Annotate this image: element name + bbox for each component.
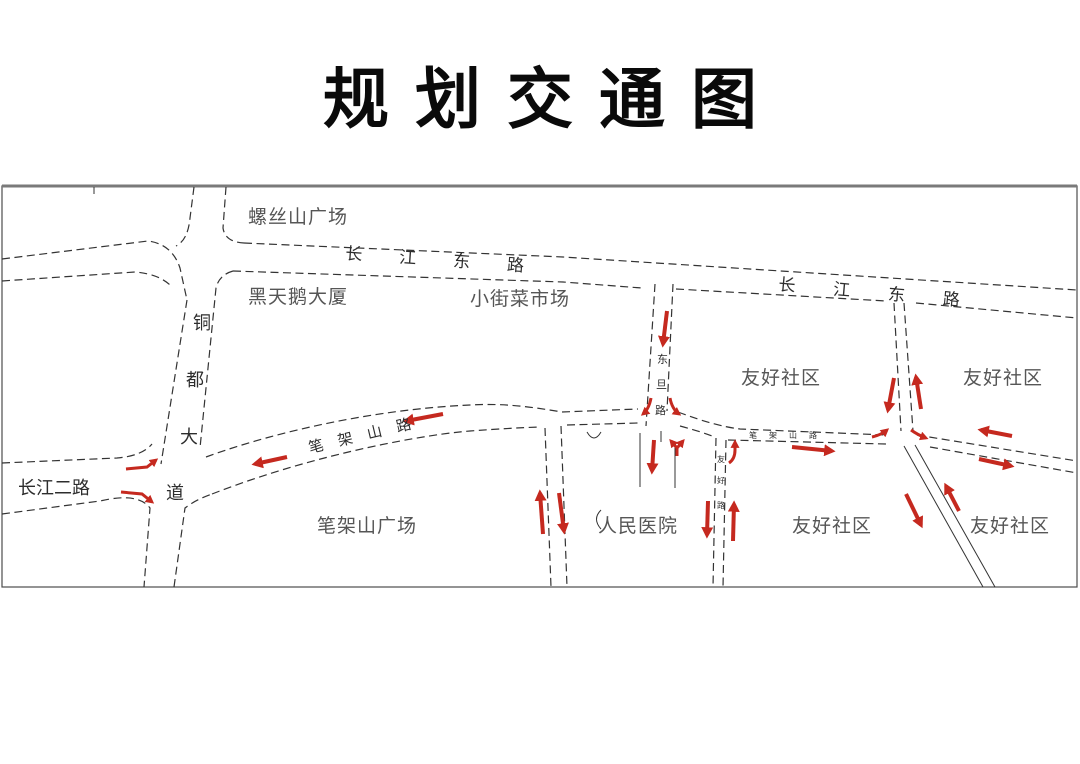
arrow-fork-right-driveway bbox=[677, 441, 683, 448]
road-line-changjiang-second bbox=[2, 444, 152, 463]
road-line-tongdu-avenue bbox=[200, 271, 233, 448]
label-tongdu-avenue-char: 铜 bbox=[193, 313, 211, 333]
road-line-changjiang-second bbox=[2, 498, 150, 587]
arrow-hook-northeast-junction bbox=[872, 430, 887, 437]
road-line-tongdu-avenue bbox=[223, 187, 244, 243]
arrow-east-bijiashan-mid bbox=[792, 447, 832, 451]
arrow-south-community-road bbox=[888, 378, 894, 410]
label-youhao-road-char: 路 bbox=[717, 500, 725, 510]
label-xiaojie-market: 小街菜市场 bbox=[470, 288, 570, 310]
label-bijiashan-square: 笔架山广场 bbox=[317, 515, 417, 537]
road-line-youhao bbox=[713, 438, 716, 587]
arrow-south-hospital-driveway bbox=[652, 440, 654, 471]
arrow-turn-south-tongdu bbox=[121, 492, 152, 502]
road-line-changjiang-east bbox=[233, 271, 642, 288]
road-line-bijiashan bbox=[917, 435, 1077, 461]
label-dongdan-road-char: 旦 bbox=[656, 379, 667, 391]
road-line-tongdu-avenue bbox=[174, 494, 212, 587]
road-line-bijiashan bbox=[728, 440, 886, 444]
arrow-north-diagonal-road bbox=[946, 486, 959, 511]
arrow-hook-southwest-dongdan bbox=[643, 398, 651, 414]
label-friendly-community-nw: 友好社区 bbox=[741, 367, 821, 389]
road-line-north-community bbox=[894, 303, 901, 431]
arrow-hook-southeast-dongdan bbox=[670, 398, 679, 414]
arrow-west-bijiashan-lower bbox=[255, 457, 287, 464]
arrow-south-diagonal-road bbox=[906, 494, 921, 525]
arrow-curve-north-youhao bbox=[729, 442, 735, 463]
traffic-plan-page: 规划交通图 bbox=[0, 0, 1080, 764]
label-black-swan-tower: 黑天鹅大厦 bbox=[248, 286, 348, 308]
label-bijiashan-road-east: 笔架山路 bbox=[749, 430, 829, 440]
label-youhao-road-char: 好 bbox=[717, 475, 725, 485]
label-changjiang-east-road-east: 长江东路 bbox=[778, 275, 999, 313]
road-line-tongdu-avenue bbox=[176, 187, 194, 246]
arrow-hook-southeast-junction bbox=[911, 430, 926, 438]
arrow-west-bijiashan-east-end bbox=[981, 430, 1012, 436]
road-line-dongdan bbox=[667, 284, 673, 411]
road-line-changjiang-east bbox=[2, 272, 172, 287]
label-friendly-community-sw: 友好社区 bbox=[792, 515, 872, 537]
road-line-bijiashan bbox=[930, 447, 1077, 473]
label-dongdan-road-char: 东 bbox=[657, 353, 668, 366]
road-line-hospital-west bbox=[545, 428, 551, 587]
arrow-south-hospital-west-road bbox=[559, 493, 564, 531]
road-line-changjiang-east bbox=[2, 241, 187, 300]
traffic-map: 螺丝山广场 黑天鹅大厦 小街菜市场 友好社区 友好社区 友好社区 友好社区 人民… bbox=[0, 0, 1080, 764]
label-peoples-hospital: 人民医院 bbox=[598, 515, 678, 537]
arrow-north-community-road bbox=[916, 377, 921, 409]
road-line-bijiashan bbox=[680, 426, 712, 436]
arrow-north-hospital-west-road bbox=[540, 493, 543, 534]
label-tongdu-avenue-char: 道 bbox=[166, 483, 184, 503]
label-luosishan-square: 螺丝山广场 bbox=[248, 206, 348, 228]
label-tongdu-avenue-char: 都 bbox=[186, 370, 204, 390]
arrow-fork-left-driveway bbox=[671, 441, 677, 456]
flow-arrows bbox=[121, 311, 1012, 541]
label-dongdan-road-char: 路 bbox=[655, 404, 666, 417]
label-bijiashan-road-west: 笔架山路 bbox=[307, 412, 428, 457]
label-friendly-community-ne: 友好社区 bbox=[963, 367, 1043, 389]
label-youhao-road-char: 友 bbox=[717, 454, 725, 464]
arrow-south-youhao bbox=[707, 501, 708, 535]
arrow-turn-north-tongdu bbox=[126, 460, 156, 469]
driveway-notch bbox=[587, 432, 601, 438]
label-tongdu-avenue-char: 大 bbox=[180, 427, 198, 447]
road-line-bijiashan bbox=[567, 423, 638, 425]
arrow-north-youhao bbox=[733, 504, 734, 541]
label-changjiang-east-road-west: 长江东路 bbox=[345, 244, 562, 278]
road-line-north-community bbox=[904, 303, 913, 431]
label-changjiang-second-road: 长江二路 bbox=[18, 478, 90, 498]
label-friendly-community-se: 友好社区 bbox=[970, 515, 1050, 537]
arrow-south-dongdan bbox=[663, 311, 667, 344]
